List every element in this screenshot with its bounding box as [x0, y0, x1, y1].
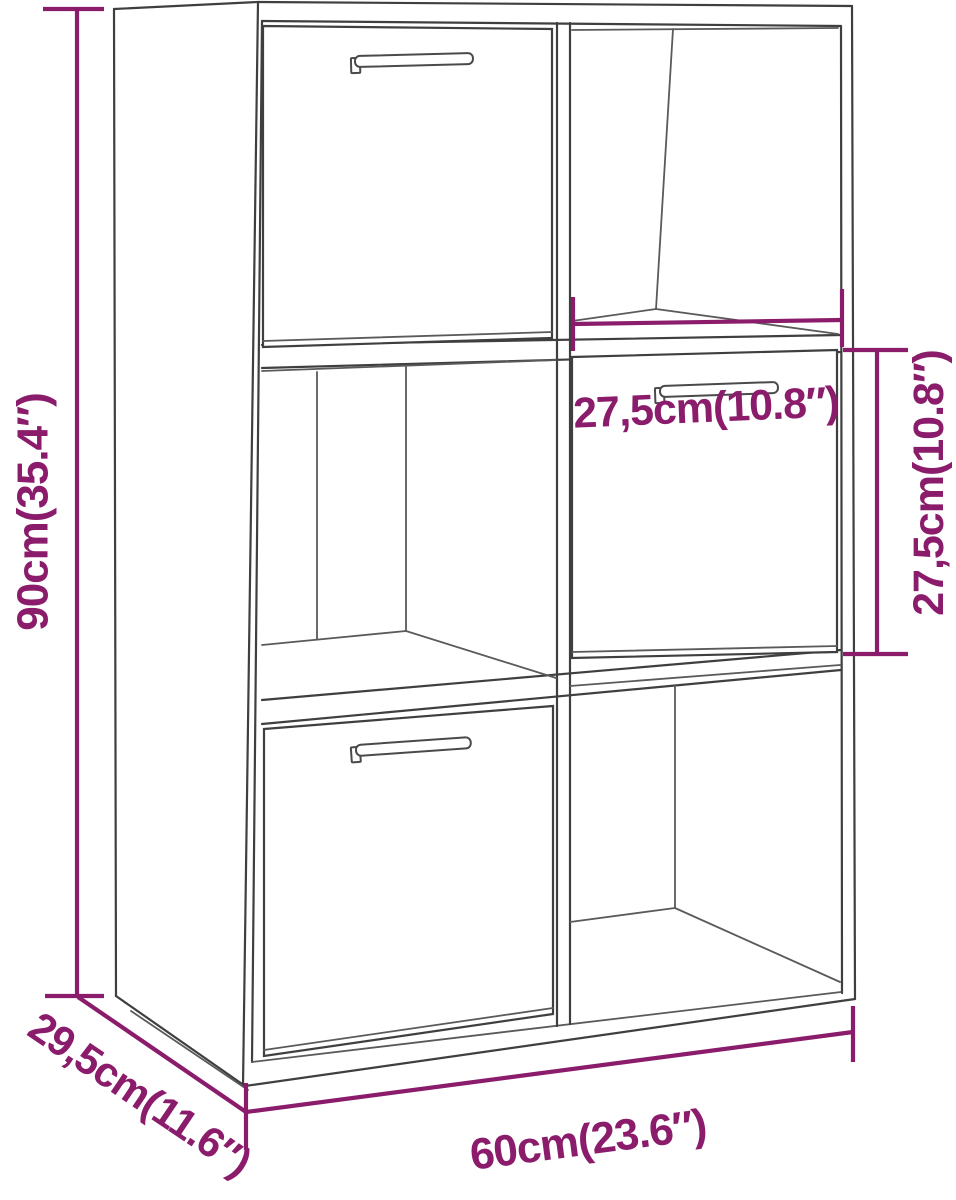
dimension-depth: 29,5cm(11.6″): [20, 997, 259, 1185]
door-top-left: [263, 26, 552, 347]
product-dimension-diagram: 90cm(35.4″) 29,5cm(11.6″) 60cm(23.6″) 27…: [0, 0, 956, 1200]
depth-dimension-label: 29,5cm(11.6″): [20, 1003, 259, 1186]
dimension-line: [573, 320, 842, 324]
dimension-diagram-canvas: 90cm(35.4″) 29,5cm(11.6″) 60cm(23.6″) 27…: [0, 0, 956, 1200]
height-dimension-label: 90cm(35.4″): [9, 393, 58, 631]
open-compartment-middle-left: [262, 360, 556, 678]
cabinet-line-art: [114, 2, 855, 1090]
dimension-compartment-height: 27,5cm(10.8″): [843, 350, 953, 654]
door-bottom-left: [264, 706, 553, 1056]
dimension-height: 90cm(35.4″): [9, 9, 105, 996]
open-compartment-bottom-right: [570, 665, 840, 982]
compartment-height-label: 27,5cm(10.8″): [905, 350, 953, 616]
width-dimension-label: 60cm(23.6″): [467, 1100, 709, 1180]
open-compartment-top-right: [572, 28, 838, 334]
